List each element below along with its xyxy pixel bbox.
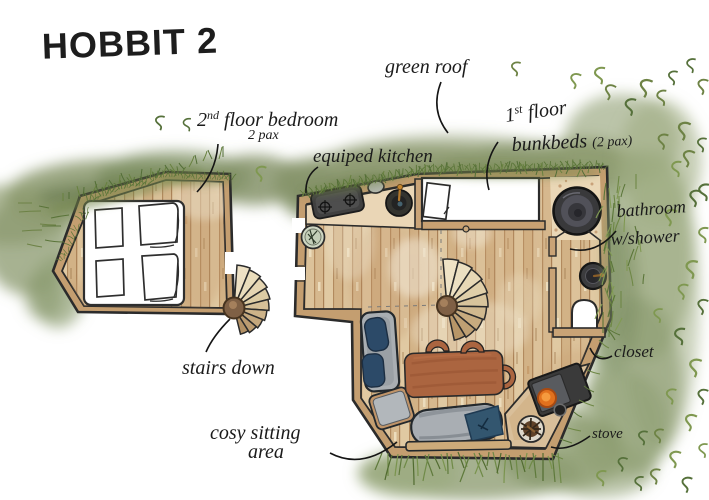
svg-text:stairs down: stairs down (182, 357, 275, 379)
svg-text:2 pax: 2 pax (248, 128, 280, 143)
svg-text:equiped kitchen: equiped kitchen (313, 146, 433, 167)
svg-text:green roof: green roof (385, 56, 470, 78)
svg-text:area: area (248, 441, 284, 463)
svg-text:closet: closet (614, 342, 655, 361)
svg-text:w/shower: w/shower (610, 225, 681, 249)
svg-text:HOBBIT 2: HOBBIT 2 (41, 20, 218, 67)
svg-text:stove: stove (592, 426, 623, 442)
